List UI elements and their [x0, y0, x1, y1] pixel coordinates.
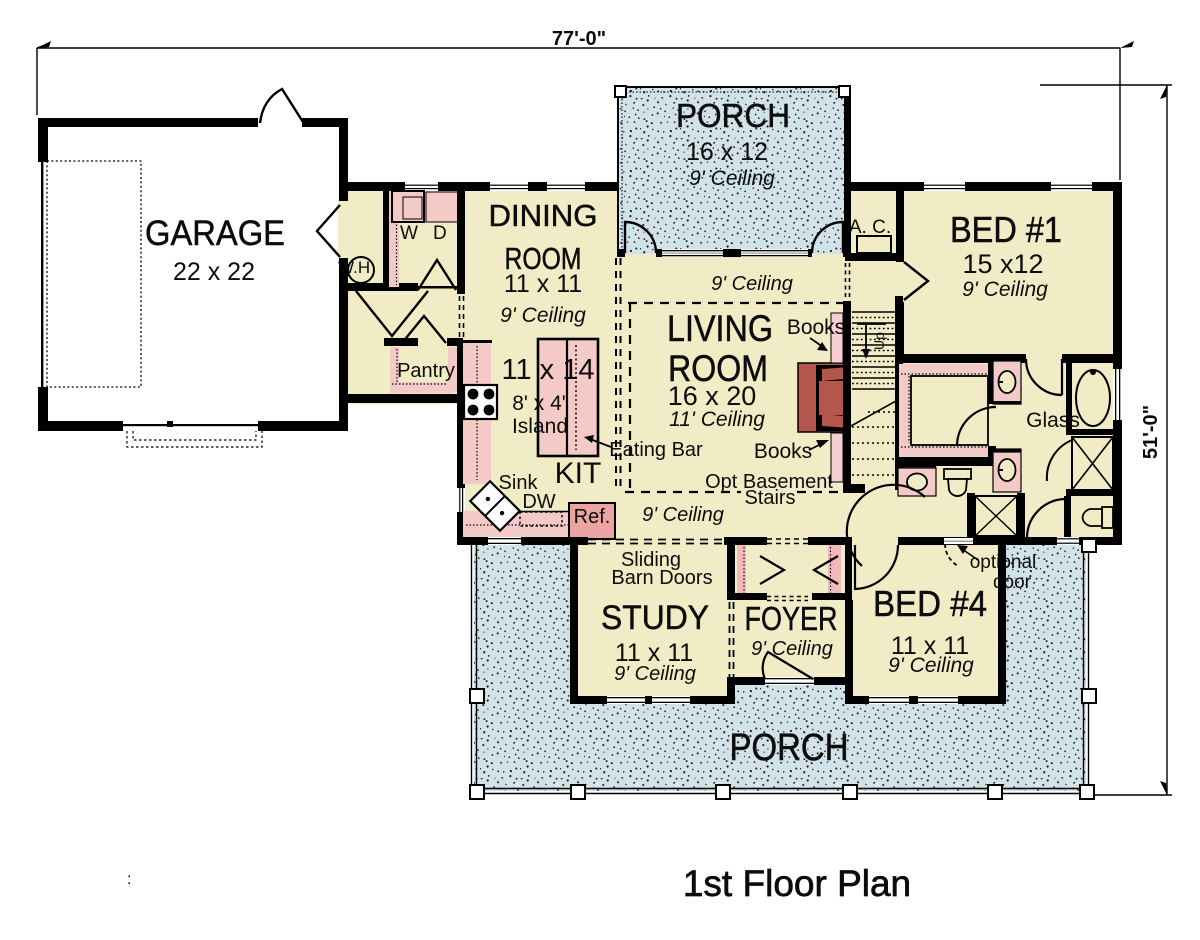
svg-text:9' Ceiling: 9' Ceiling	[962, 278, 1048, 301]
svg-text:9' Ceiling: 9' Ceiling	[642, 504, 724, 526]
svg-text:STUDY: STUDY	[601, 599, 709, 637]
svg-text:Books: Books	[754, 440, 812, 463]
svg-text:16 x 20: 16 x 20	[668, 381, 757, 411]
svg-text:DW: DW	[522, 491, 555, 513]
svg-text:11' Ceiling: 11' Ceiling	[669, 408, 765, 431]
svg-text:11 x 14: 11 x 14	[502, 354, 595, 386]
svg-text:9' Ceiling: 9' Ceiling	[614, 663, 696, 685]
svg-text:9' Ceiling: 9' Ceiling	[500, 304, 586, 327]
svg-text:Barn Doors: Barn Doors	[611, 567, 712, 589]
svg-text:9' Ceiling: 9' Ceiling	[689, 167, 775, 190]
svg-text:Ref.: Ref.	[574, 506, 611, 528]
svg-text:1st Floor Plan: 1st Floor Plan	[683, 863, 911, 904]
svg-text:DINING: DINING	[489, 198, 598, 233]
svg-text:PORCH: PORCH	[730, 727, 849, 769]
svg-text:9' Ceiling: 9' Ceiling	[888, 654, 974, 677]
svg-text:W: W	[400, 223, 418, 244]
svg-text:LIVING: LIVING	[667, 308, 773, 349]
svg-text:Up: Up	[871, 332, 887, 350]
svg-text:Books: Books	[787, 316, 845, 339]
svg-text:22 x 22: 22 x 22	[173, 258, 255, 286]
svg-text:Stairs: Stairs	[744, 487, 795, 509]
svg-text:8' x 4': 8' x 4'	[512, 392, 566, 415]
svg-text::: :	[127, 871, 131, 888]
svg-text:A. C.: A. C.	[849, 217, 891, 238]
svg-text:Island: Island	[512, 415, 568, 438]
svg-text:BED #1: BED #1	[950, 209, 1062, 250]
svg-text:Eating Bar: Eating Bar	[609, 439, 703, 461]
svg-text:GARAGE: GARAGE	[145, 214, 285, 253]
svg-text:PORCH: PORCH	[676, 97, 790, 134]
svg-text:15 x12: 15 x12	[962, 249, 1043, 279]
svg-text:BED #4: BED #4	[873, 583, 987, 624]
svg-text:11 x 11: 11 x 11	[504, 270, 582, 298]
svg-text:KIT: KIT	[555, 457, 602, 490]
svg-text:D: D	[433, 223, 447, 244]
svg-text:9' Ceiling: 9' Ceiling	[751, 638, 833, 660]
svg-text:9' Ceiling: 9' Ceiling	[711, 273, 793, 295]
svg-text:16 x 12: 16 x 12	[686, 138, 768, 166]
svg-text:77'-0": 77'-0"	[552, 28, 606, 50]
svg-text:FOYER: FOYER	[745, 600, 838, 637]
svg-text:Pantry: Pantry	[397, 360, 455, 382]
svg-text:51'-0": 51'-0"	[1140, 405, 1162, 459]
svg-text:W.H: W.H	[338, 258, 370, 277]
